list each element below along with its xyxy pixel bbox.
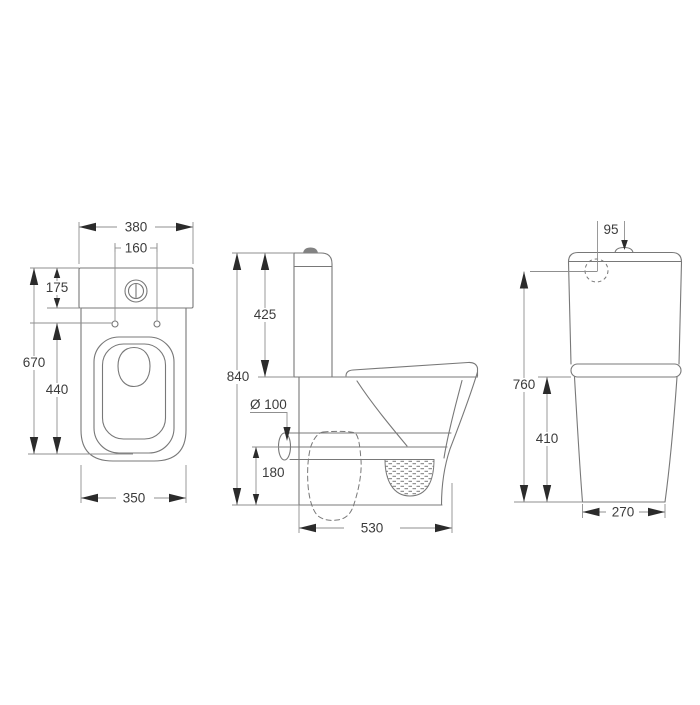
- dim-tank-height-label: 425: [254, 307, 277, 322]
- dim-tank-height: 425: [251, 253, 279, 377]
- hinge-hole-right: [154, 321, 160, 327]
- dim-overall-length: 670: [21, 268, 47, 454]
- dim-outlet-diameter: Ø 100: [250, 397, 291, 441]
- rear-view: 95 760 410 270: [510, 221, 682, 520]
- dim-base-width: 270: [583, 505, 666, 520]
- body-left-edge: [575, 377, 583, 502]
- arrowhead: [233, 488, 241, 505]
- lid-button-bump: [303, 248, 318, 254]
- dim-base-length-label: 350: [123, 491, 146, 506]
- arrowhead: [583, 508, 600, 516]
- body-outline: [81, 308, 186, 461]
- arrowhead: [648, 508, 665, 516]
- dim-inlet-height: 760: [510, 272, 538, 503]
- seat-outer-ring: [94, 337, 174, 453]
- arrowhead: [543, 485, 551, 502]
- dim-seat-length-label: 440: [46, 382, 69, 397]
- dim-outlet-diameter-label: Ø 100: [250, 397, 287, 412]
- arrowhead: [543, 377, 551, 394]
- dim-base-length: 350: [81, 491, 186, 506]
- seat-joint-band: [571, 364, 681, 377]
- arrowhead: [253, 447, 259, 458]
- arrowhead: [81, 494, 98, 502]
- tank-front-edge: [321, 253, 332, 377]
- bowl-opening: [118, 348, 150, 387]
- dim-bowl-height-label: 410: [536, 431, 559, 446]
- arrowhead: [435, 524, 452, 532]
- arrowhead: [53, 323, 61, 340]
- bowl-inner-wall-right: [444, 381, 462, 459]
- dim-overall-width: 380: [79, 220, 193, 235]
- inlet-hole-dashed: [585, 259, 608, 282]
- arrowhead: [233, 253, 241, 270]
- dim-overall-height-label: 840: [227, 369, 250, 384]
- arrowhead: [520, 272, 528, 289]
- arrowhead: [30, 437, 38, 454]
- arrowhead: [621, 240, 628, 250]
- arrowhead: [520, 485, 528, 502]
- tank-outline: [569, 253, 682, 365]
- dim-overall-length-label: 670: [23, 355, 46, 370]
- dim-overall-depth: 530: [299, 521, 452, 536]
- dim-overall-width-label: 380: [125, 220, 148, 235]
- arrowhead: [169, 494, 186, 502]
- arrowhead: [54, 268, 60, 278]
- body-right-edge: [665, 377, 677, 502]
- water-pool: [385, 460, 434, 497]
- dim-overall-height: 840: [224, 253, 252, 505]
- arrowhead: [299, 524, 316, 532]
- seat-inner-ring: [103, 344, 166, 439]
- toilet-technical-drawing: 380 160 175 670: [0, 0, 700, 700]
- dim-overall-depth-label: 530: [361, 521, 384, 536]
- dim-tank-depth-label: 175: [46, 280, 69, 295]
- arrowhead: [54, 298, 60, 308]
- dim-tank-depth: 175: [44, 268, 70, 308]
- arrowhead: [53, 437, 61, 454]
- dim-inlet-height-label: 760: [513, 377, 536, 392]
- hinge-hole-left: [112, 321, 118, 327]
- dim-hinge-spacing: 160: [115, 241, 157, 256]
- rear-view-extension-lines: [514, 221, 665, 518]
- bowl-inner-wall-left: [357, 381, 407, 446]
- dim-bowl-height: 410: [533, 377, 561, 502]
- arrowhead: [261, 253, 269, 270]
- arrowhead: [261, 360, 269, 377]
- dim-base-width-label: 270: [612, 505, 635, 520]
- arrowhead: [253, 494, 259, 505]
- side-view: 840 425 Ø 100 180 530: [224, 248, 478, 536]
- arrowhead: [176, 223, 193, 231]
- arrowhead: [30, 268, 38, 285]
- arrowhead: [79, 223, 96, 231]
- seat-rim-profile: [346, 362, 478, 376]
- dim-outlet-height-label: 180: [262, 465, 285, 480]
- dim-seat-length: 440: [44, 323, 70, 454]
- top-view: 380 160 175 670: [21, 220, 193, 506]
- dim-hinge-spacing-label: 160: [125, 241, 148, 256]
- trapway-dashed: [308, 431, 362, 520]
- dim-inlet-offset-label: 95: [603, 222, 618, 237]
